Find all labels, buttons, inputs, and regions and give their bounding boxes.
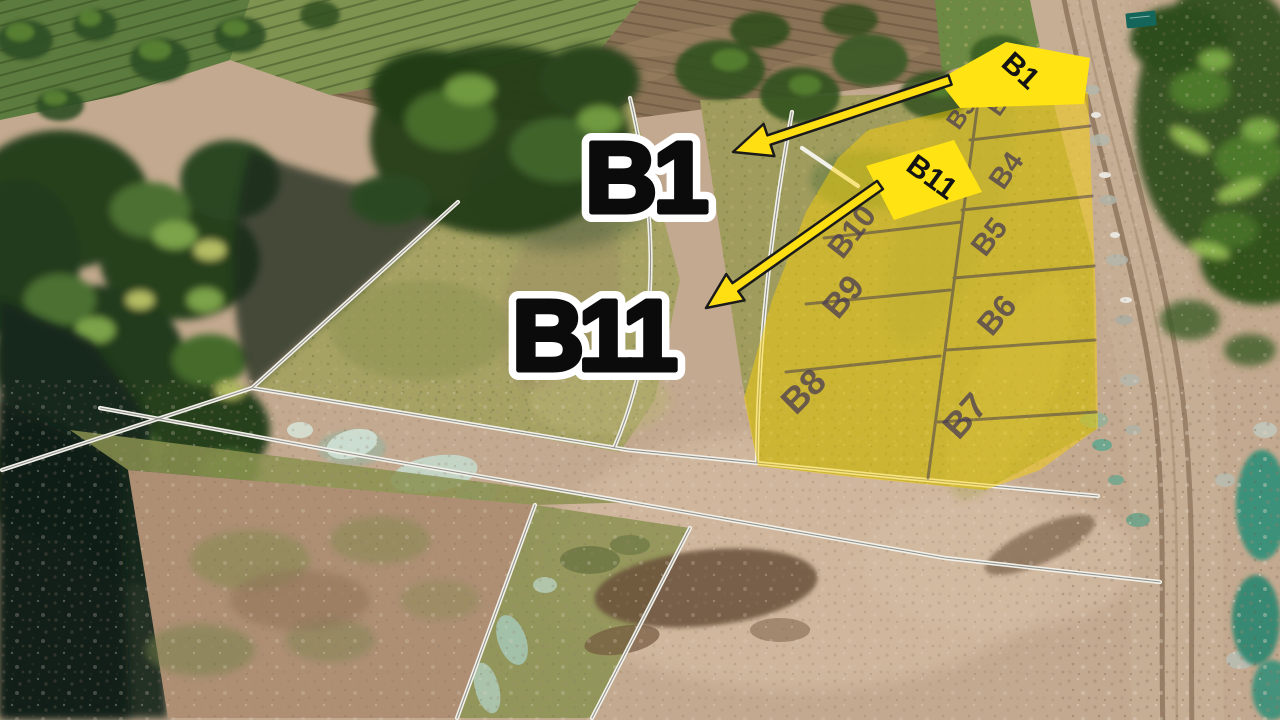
callout-b11-label: B11 <box>512 280 675 392</box>
terrain-artwork: B2 B3 B4 B5 B6 B7 B8 B9 B10 B1 B11 B1 B1… <box>0 0 1280 720</box>
aerial-site-photo: B2 B3 B4 B5 B6 B7 B8 B9 B10 B1 B11 B1 B1… <box>0 0 1280 720</box>
callout-b1-label: B1 <box>585 122 706 234</box>
callout-b11: B11 B11 <box>512 280 675 392</box>
callout-b1: B1 B1 <box>585 122 706 234</box>
small-road-sign <box>1125 10 1156 28</box>
